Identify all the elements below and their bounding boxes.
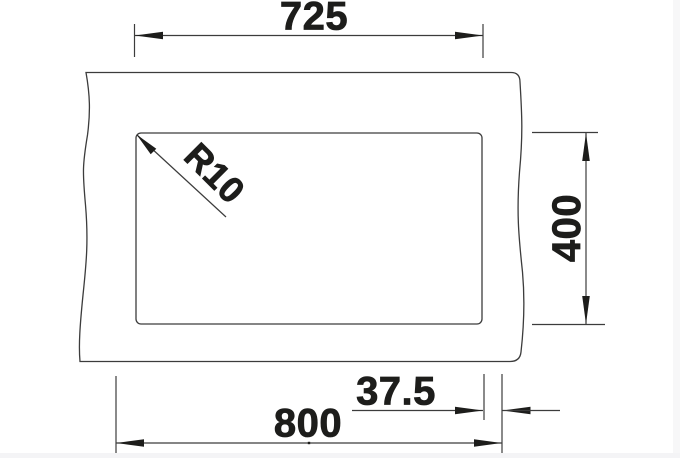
bottom-dim-label: 800 xyxy=(274,402,342,446)
top-dim-arrow-right xyxy=(455,32,483,40)
countertop-outline xyxy=(79,73,523,362)
page-edge-right xyxy=(673,0,680,458)
top-dim-arrow-left xyxy=(135,32,163,40)
radius-label: R10 xyxy=(176,135,253,212)
right-dim-arrow-down xyxy=(582,296,590,324)
offset-dim-arrow-right xyxy=(455,407,483,415)
right-dim-arrow-up xyxy=(582,133,590,161)
radius-arrow xyxy=(137,135,157,155)
page-edge-bottom xyxy=(0,453,680,458)
bottom-dim-arrow-right xyxy=(474,439,502,447)
drawing-canvas: 725 400 R10 37.5 800 xyxy=(0,0,680,458)
right-dim-label: 400 xyxy=(545,194,589,262)
dimension-drawing: 725 400 R10 37.5 800 xyxy=(0,0,680,458)
bottom-dim-arrow-left xyxy=(117,439,145,447)
offset-dim-label: 37.5 xyxy=(356,370,436,414)
top-dim-label: 725 xyxy=(280,0,348,39)
